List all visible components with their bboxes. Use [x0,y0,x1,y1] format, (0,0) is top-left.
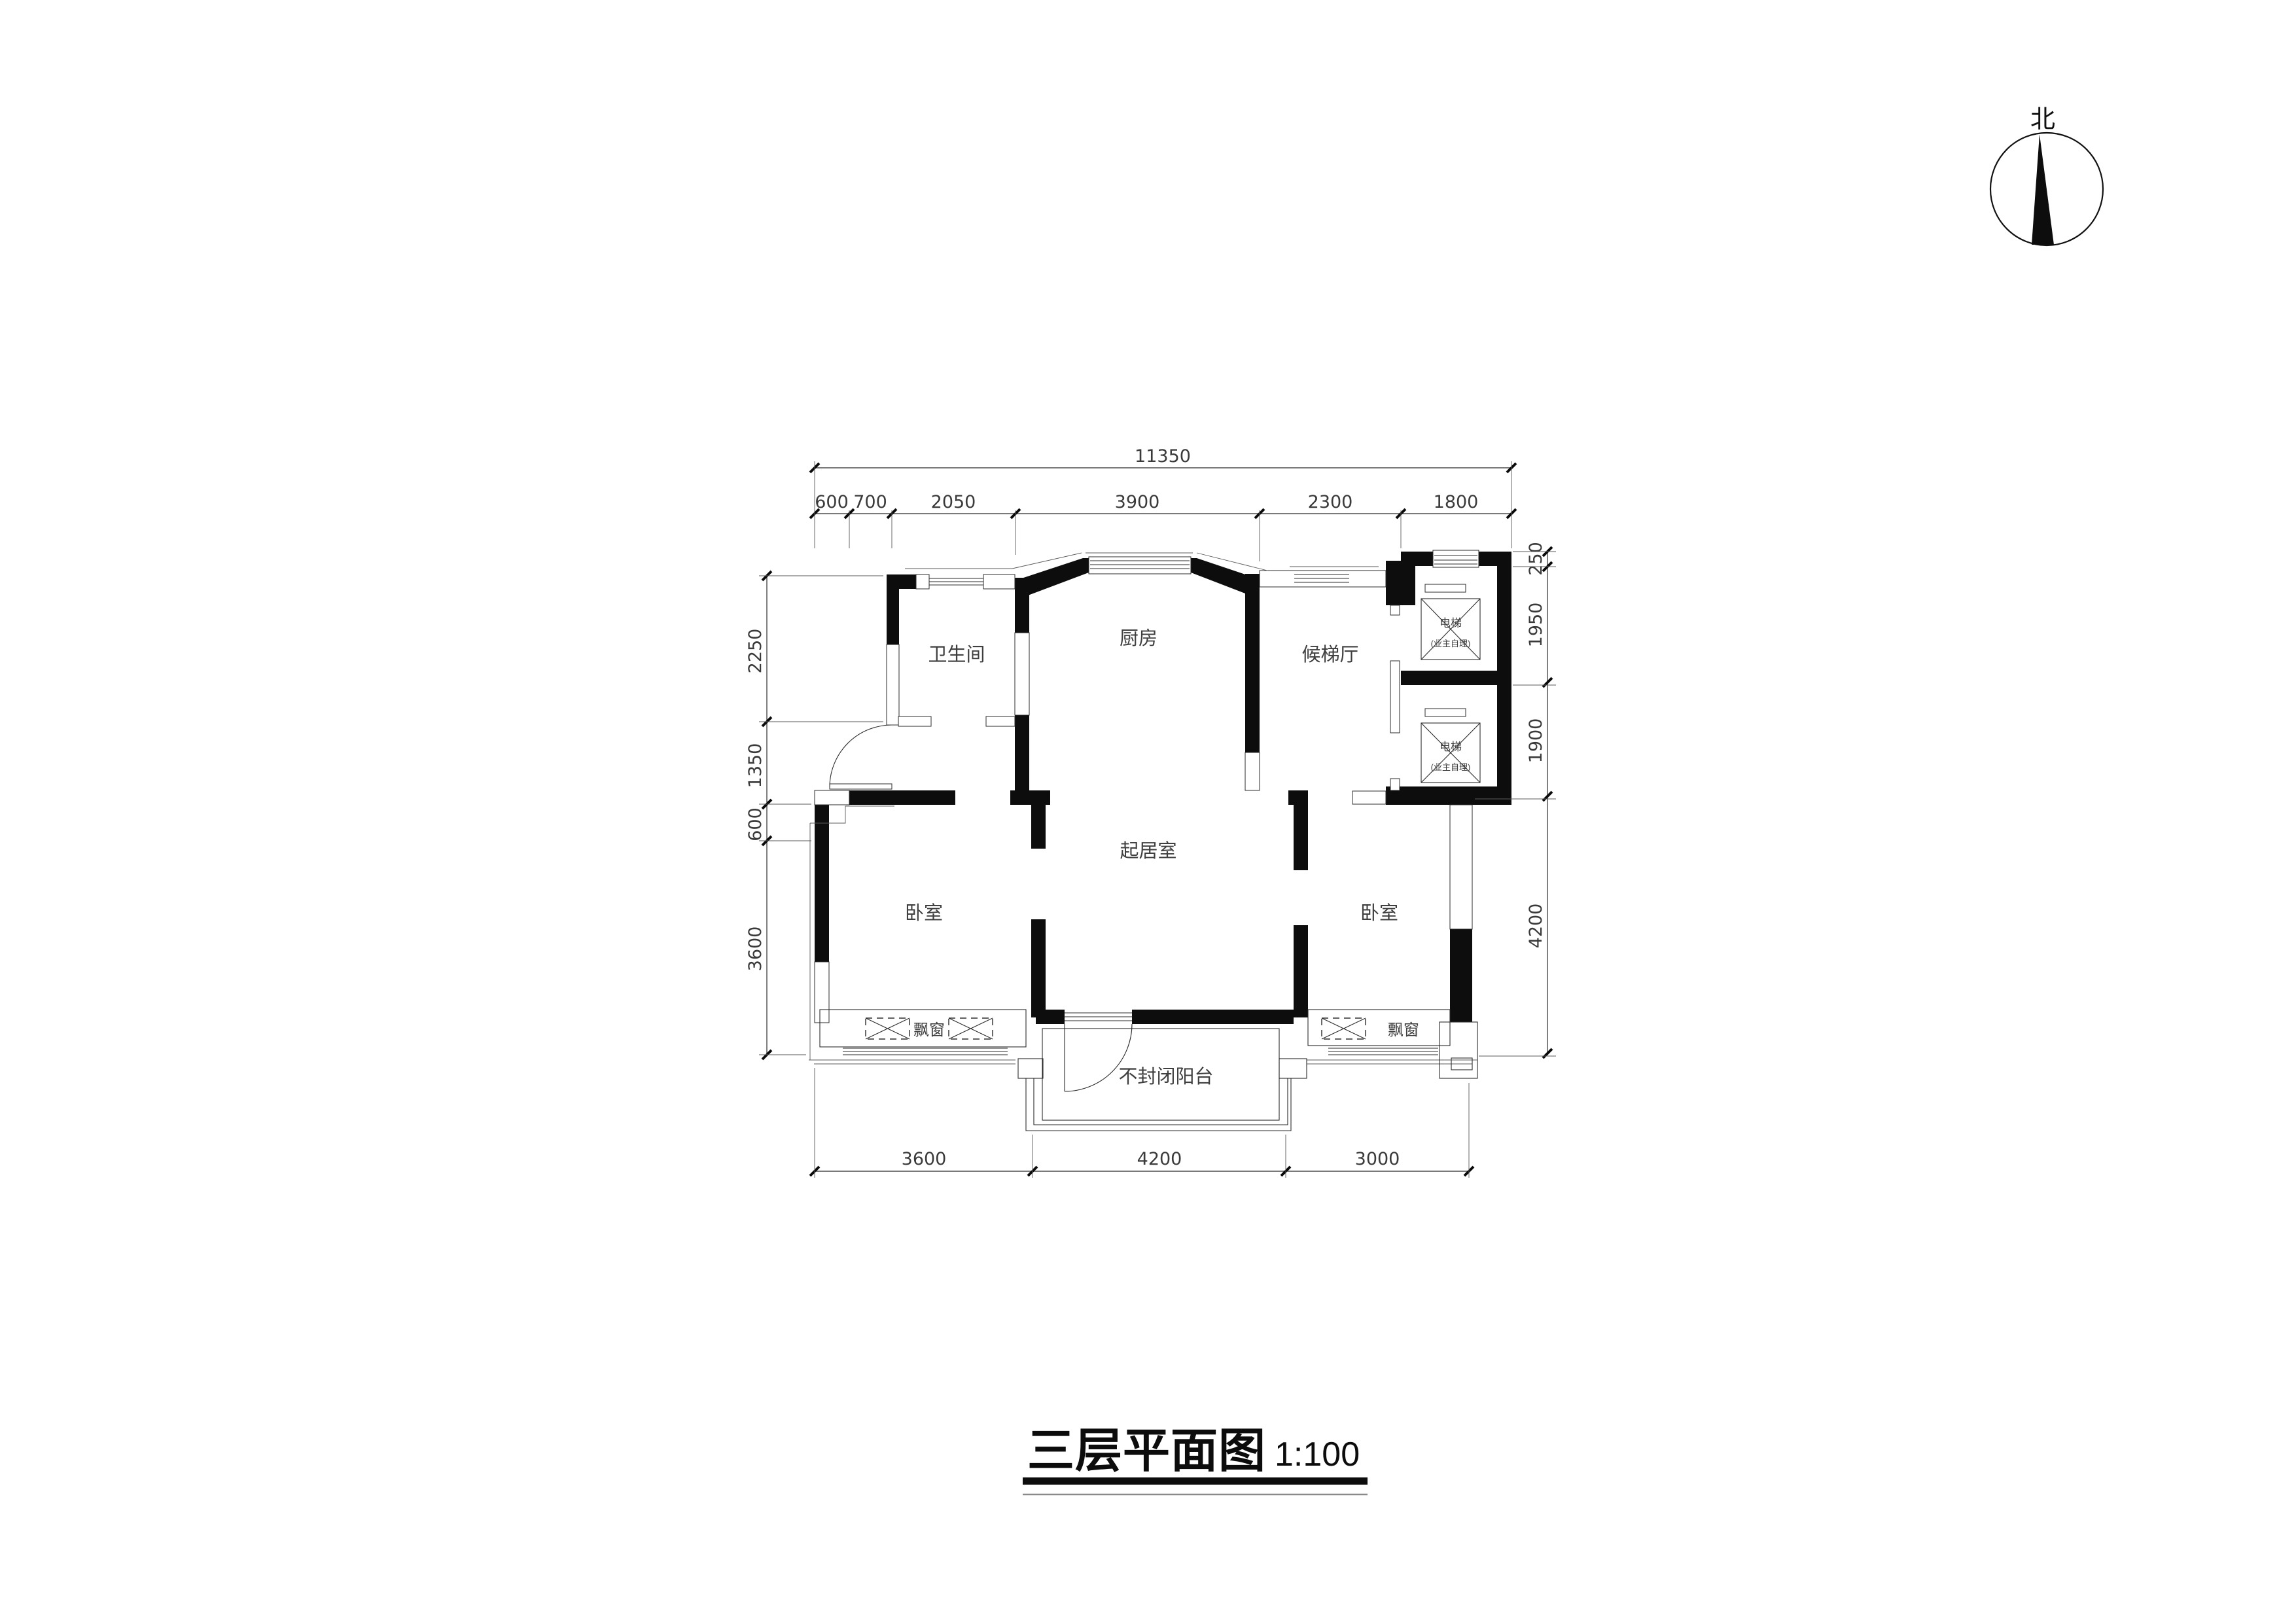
dim-text: 1900 [1526,718,1546,764]
dim-text: 2250 [745,629,766,674]
wall-corridor-stub-right [1288,790,1308,805]
balcony-step-right [1279,1059,1307,1078]
dim-text: 2050 [931,492,976,512]
elevator-label: 电梯 [1439,617,1462,629]
wall-thin-shaft-left-b [1390,661,1400,733]
north-arrow: 北 [1990,106,2103,245]
north-label: 北 [2030,106,2055,133]
wall-thin-west-lower [815,962,829,1023]
dim-text: 3600 [902,1149,947,1169]
bedroom-right-door-leaf [1352,791,1386,804]
wall-thin-shaft-left-a [1390,605,1400,615]
bay-window-label: 飘窗 [1388,1021,1419,1039]
wall-thin-entry [815,790,849,805]
room-label-bedroom-right: 卧室 [1360,902,1398,924]
bay-window-label: 飘窗 [913,1021,945,1039]
wall-shaft-bottom [1386,786,1511,805]
wall-divider-right-upper [1294,805,1308,870]
window-frame [1089,557,1191,574]
drawing-title: 三层平面图 [1027,1425,1266,1477]
wall-kitchen-west-upper [1015,578,1029,633]
elevator-label: 电梯 [1439,741,1462,753]
opening-bathroom-north [916,574,929,589]
dim-text: 700 [853,492,887,512]
wall-thin-shaft-left-c [1390,779,1400,790]
dim-text: 3600 [745,927,766,972]
room-label-elevator-hall: 候梯厅 [1301,644,1358,665]
elevator-2: 电梯 (业主自理) [1421,709,1480,783]
wall-kitchen-east [1245,574,1260,752]
dim-text: 2300 [1308,492,1353,512]
dimension-top: 11350 600 700 2050 3900 2300 1800 [810,446,1516,561]
wall-thin-east-bedroom [1450,805,1472,929]
entry-door [830,725,892,789]
wall-divider-right-lower [1294,925,1308,1017]
dim-text: 600 [745,807,766,841]
opening-bathroom-north2 [983,574,1015,589]
dim-text: 3900 [1115,492,1160,512]
wall-east-bedroom [1450,929,1472,1022]
bay-x-symbol [1322,1018,1366,1039]
room-label-bedroom-left: 卧室 [905,902,943,924]
drawing-scale: 1:100 [1275,1436,1360,1474]
bay-box [1308,1010,1450,1046]
drawing-sheet: 电梯 (业主自理) 电梯 (业主自理) 飘窗 [0,0,2296,1624]
wall-corridor-stub-left [1010,790,1050,805]
wall-thin-kitchen-west [1015,633,1029,715]
wall-entry-south [849,790,955,805]
wall-divider-left-upper [1031,805,1046,849]
elevator-1: 电梯 (业主自理) [1421,584,1480,660]
wall-living-south-right [1132,1010,1294,1024]
wall-living-south-left [1036,1010,1065,1024]
floor-plan-svg: 电梯 (业主自理) 电梯 (业主自理) 飘窗 [0,0,2296,1624]
wall-bathroom-west [887,574,899,644]
title-underline-thick [1023,1477,1368,1485]
opening-kitchen-door [1245,752,1260,790]
bay-window-left: 飘窗 [809,1010,1026,1064]
walls [815,552,1511,1024]
wall-divider-left-lower [1031,919,1046,1017]
dim-text: 1950 [1526,603,1546,648]
room-label-kitchen: 厨房 [1120,627,1157,649]
dim-text: 600 [815,492,849,512]
dim-text: 1800 [1434,492,1479,512]
wall-shaft-divider [1401,671,1511,685]
title-block: 三层平面图 1:100 [1023,1425,1368,1494]
wall-thin-bathroom-south-a [898,716,931,726]
dim-text: 1350 [745,743,766,788]
entry-door-swing-arc [830,725,892,787]
wall-shaft-corner [1386,561,1415,605]
window-shaft-top [1433,550,1479,567]
room-label-bathroom: 卫生间 [928,644,985,665]
elevator-note: (业主自理) [1431,639,1471,648]
room-label-balcony: 不封闭阳台 [1118,1066,1213,1087]
wall-openings [815,550,1479,1023]
elevator-door [1425,584,1466,592]
wall-thin-bathroom-west [887,644,899,725]
balcony-step-left [1018,1059,1043,1078]
dim-text-total: 11350 [1135,446,1191,467]
dim-text: 250 [1526,542,1546,576]
room-label-living: 起居室 [1120,840,1176,862]
bay-x-symbol [949,1018,993,1039]
wall-west-bedroom [815,805,829,962]
wall-thin-bathroom-south-b [986,716,1015,726]
elevator-note: (业主自理) [1431,762,1471,772]
dim-text: 4200 [1137,1149,1182,1169]
compass-needle [2032,134,2054,245]
elevator-door [1425,709,1466,716]
bay-x-symbol [866,1018,910,1039]
dim-text: 4200 [1526,904,1546,949]
dim-text: 3000 [1355,1149,1400,1169]
entry-door-leaf [830,784,892,789]
